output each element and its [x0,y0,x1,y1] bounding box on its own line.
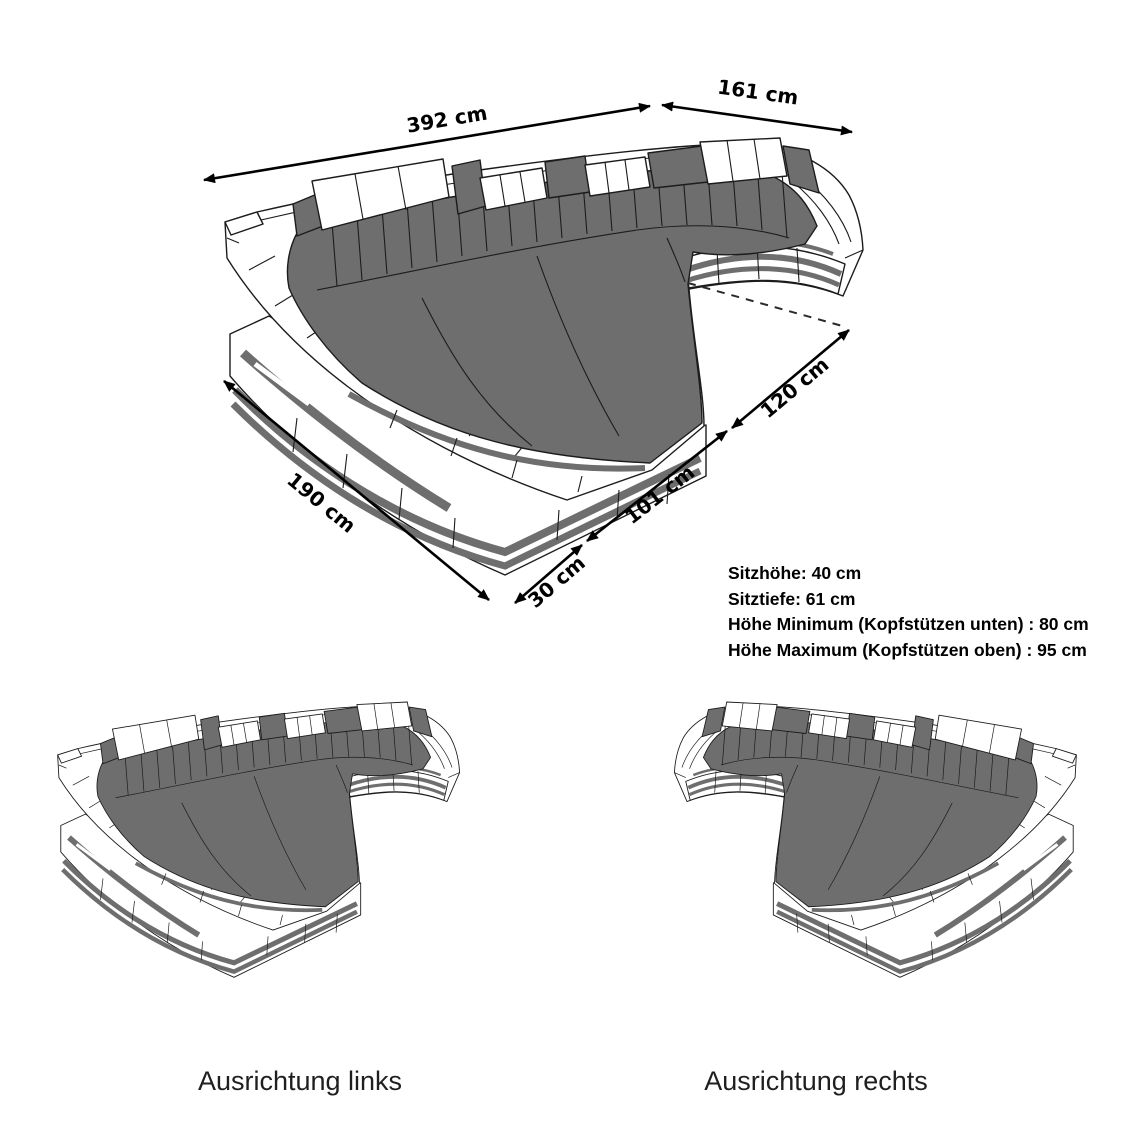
sofa-illustration-left-variant [58,702,460,977]
specs-block: Sitzhöhe: 40 cm Sitztiefe: 61 cm Höhe Mi… [728,561,1089,663]
dimension-label: 120 cm [756,352,834,423]
sofa-illustration-right-variant [674,702,1076,977]
dimension-label: 161 cm [716,75,800,110]
spec-seat-depth: Sitztiefe: 61 cm [728,587,1089,613]
dimension-right-depth: 120 cm [732,330,849,428]
spec-seat-height: Sitzhöhe: 40 cm [728,561,1089,587]
dimension-label: 392 cm [405,101,489,138]
dimension-right-width: 161 cm [662,75,852,132]
variant-label-rechts: Ausrichtung rechts [656,1066,976,1097]
dimension-arrow-line [662,105,852,132]
diagram-page: 392 cm 161 cm 190 cm 30 cm 101 cm 120 cm… [0,0,1134,1134]
spec-height-max: Höhe Maximum (Kopfstützen oben) : 95 cm [728,638,1089,664]
spec-height-min: Höhe Minimum (Kopfstützen unten) : 80 cm [728,612,1089,638]
variant-label-links: Ausrichtung links [140,1066,460,1097]
